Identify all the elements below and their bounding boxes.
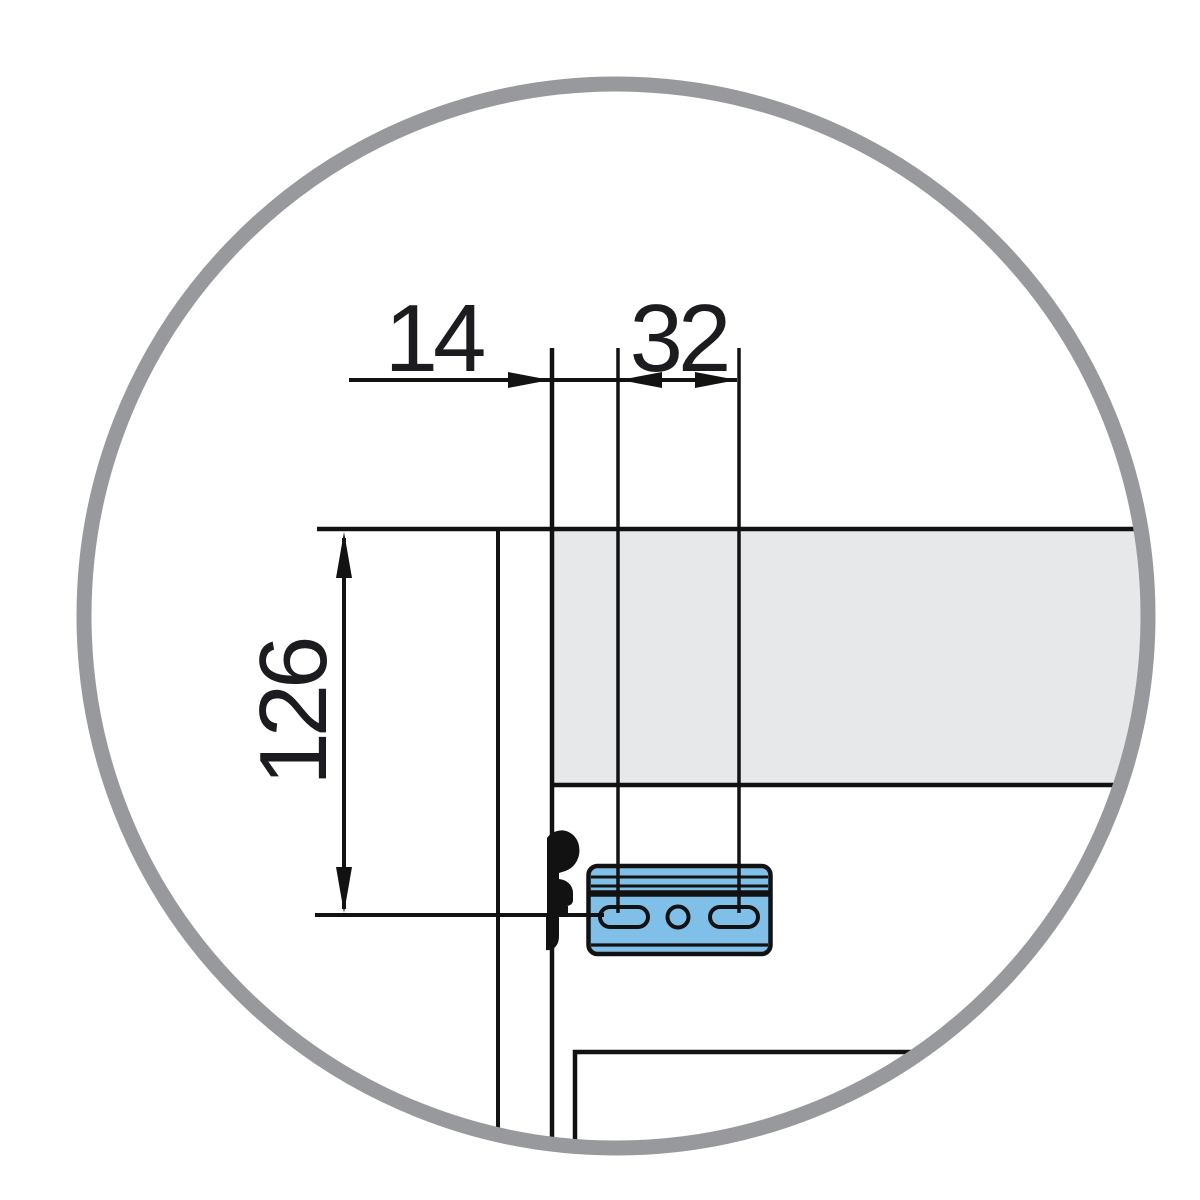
detail-drawing-stage: 14 32 126: [0, 0, 1200, 1200]
bracket-slot-right: [710, 907, 758, 927]
dimension-126-label: 126: [240, 639, 347, 786]
bracket-slot-left: [600, 907, 648, 927]
lens-content: 14 32 126: [240, 285, 1146, 1148]
technical-diagram-canvas: 14 32 126: [0, 0, 1200, 1200]
dimension-32-label: 32: [630, 285, 727, 392]
cam-pin-silhouette: [547, 830, 579, 914]
arrowhead-dim126-down: [336, 867, 352, 913]
dimension-14-label: 14: [385, 285, 484, 392]
arrowhead-dim14-right: [508, 372, 550, 388]
cam-pin-foot: [546, 914, 559, 950]
arrowhead-dim126-up: [336, 532, 352, 578]
front-mounting-bracket: [589, 866, 771, 954]
drawer-rail-gray-panel: [554, 529, 1146, 785]
bracket-screw-hole: [668, 907, 689, 928]
